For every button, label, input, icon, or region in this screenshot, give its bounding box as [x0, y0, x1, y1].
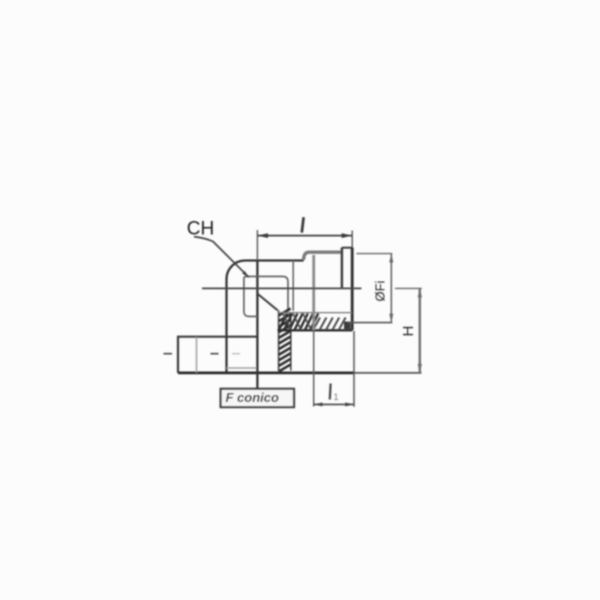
svg-text:H: H [400, 326, 417, 337]
svg-text:1: 1 [334, 392, 339, 402]
svg-text:CH: CH [187, 219, 214, 240]
svg-text:F conico: F conico [226, 390, 280, 405]
svg-text:ØFi: ØFi [373, 280, 388, 301]
